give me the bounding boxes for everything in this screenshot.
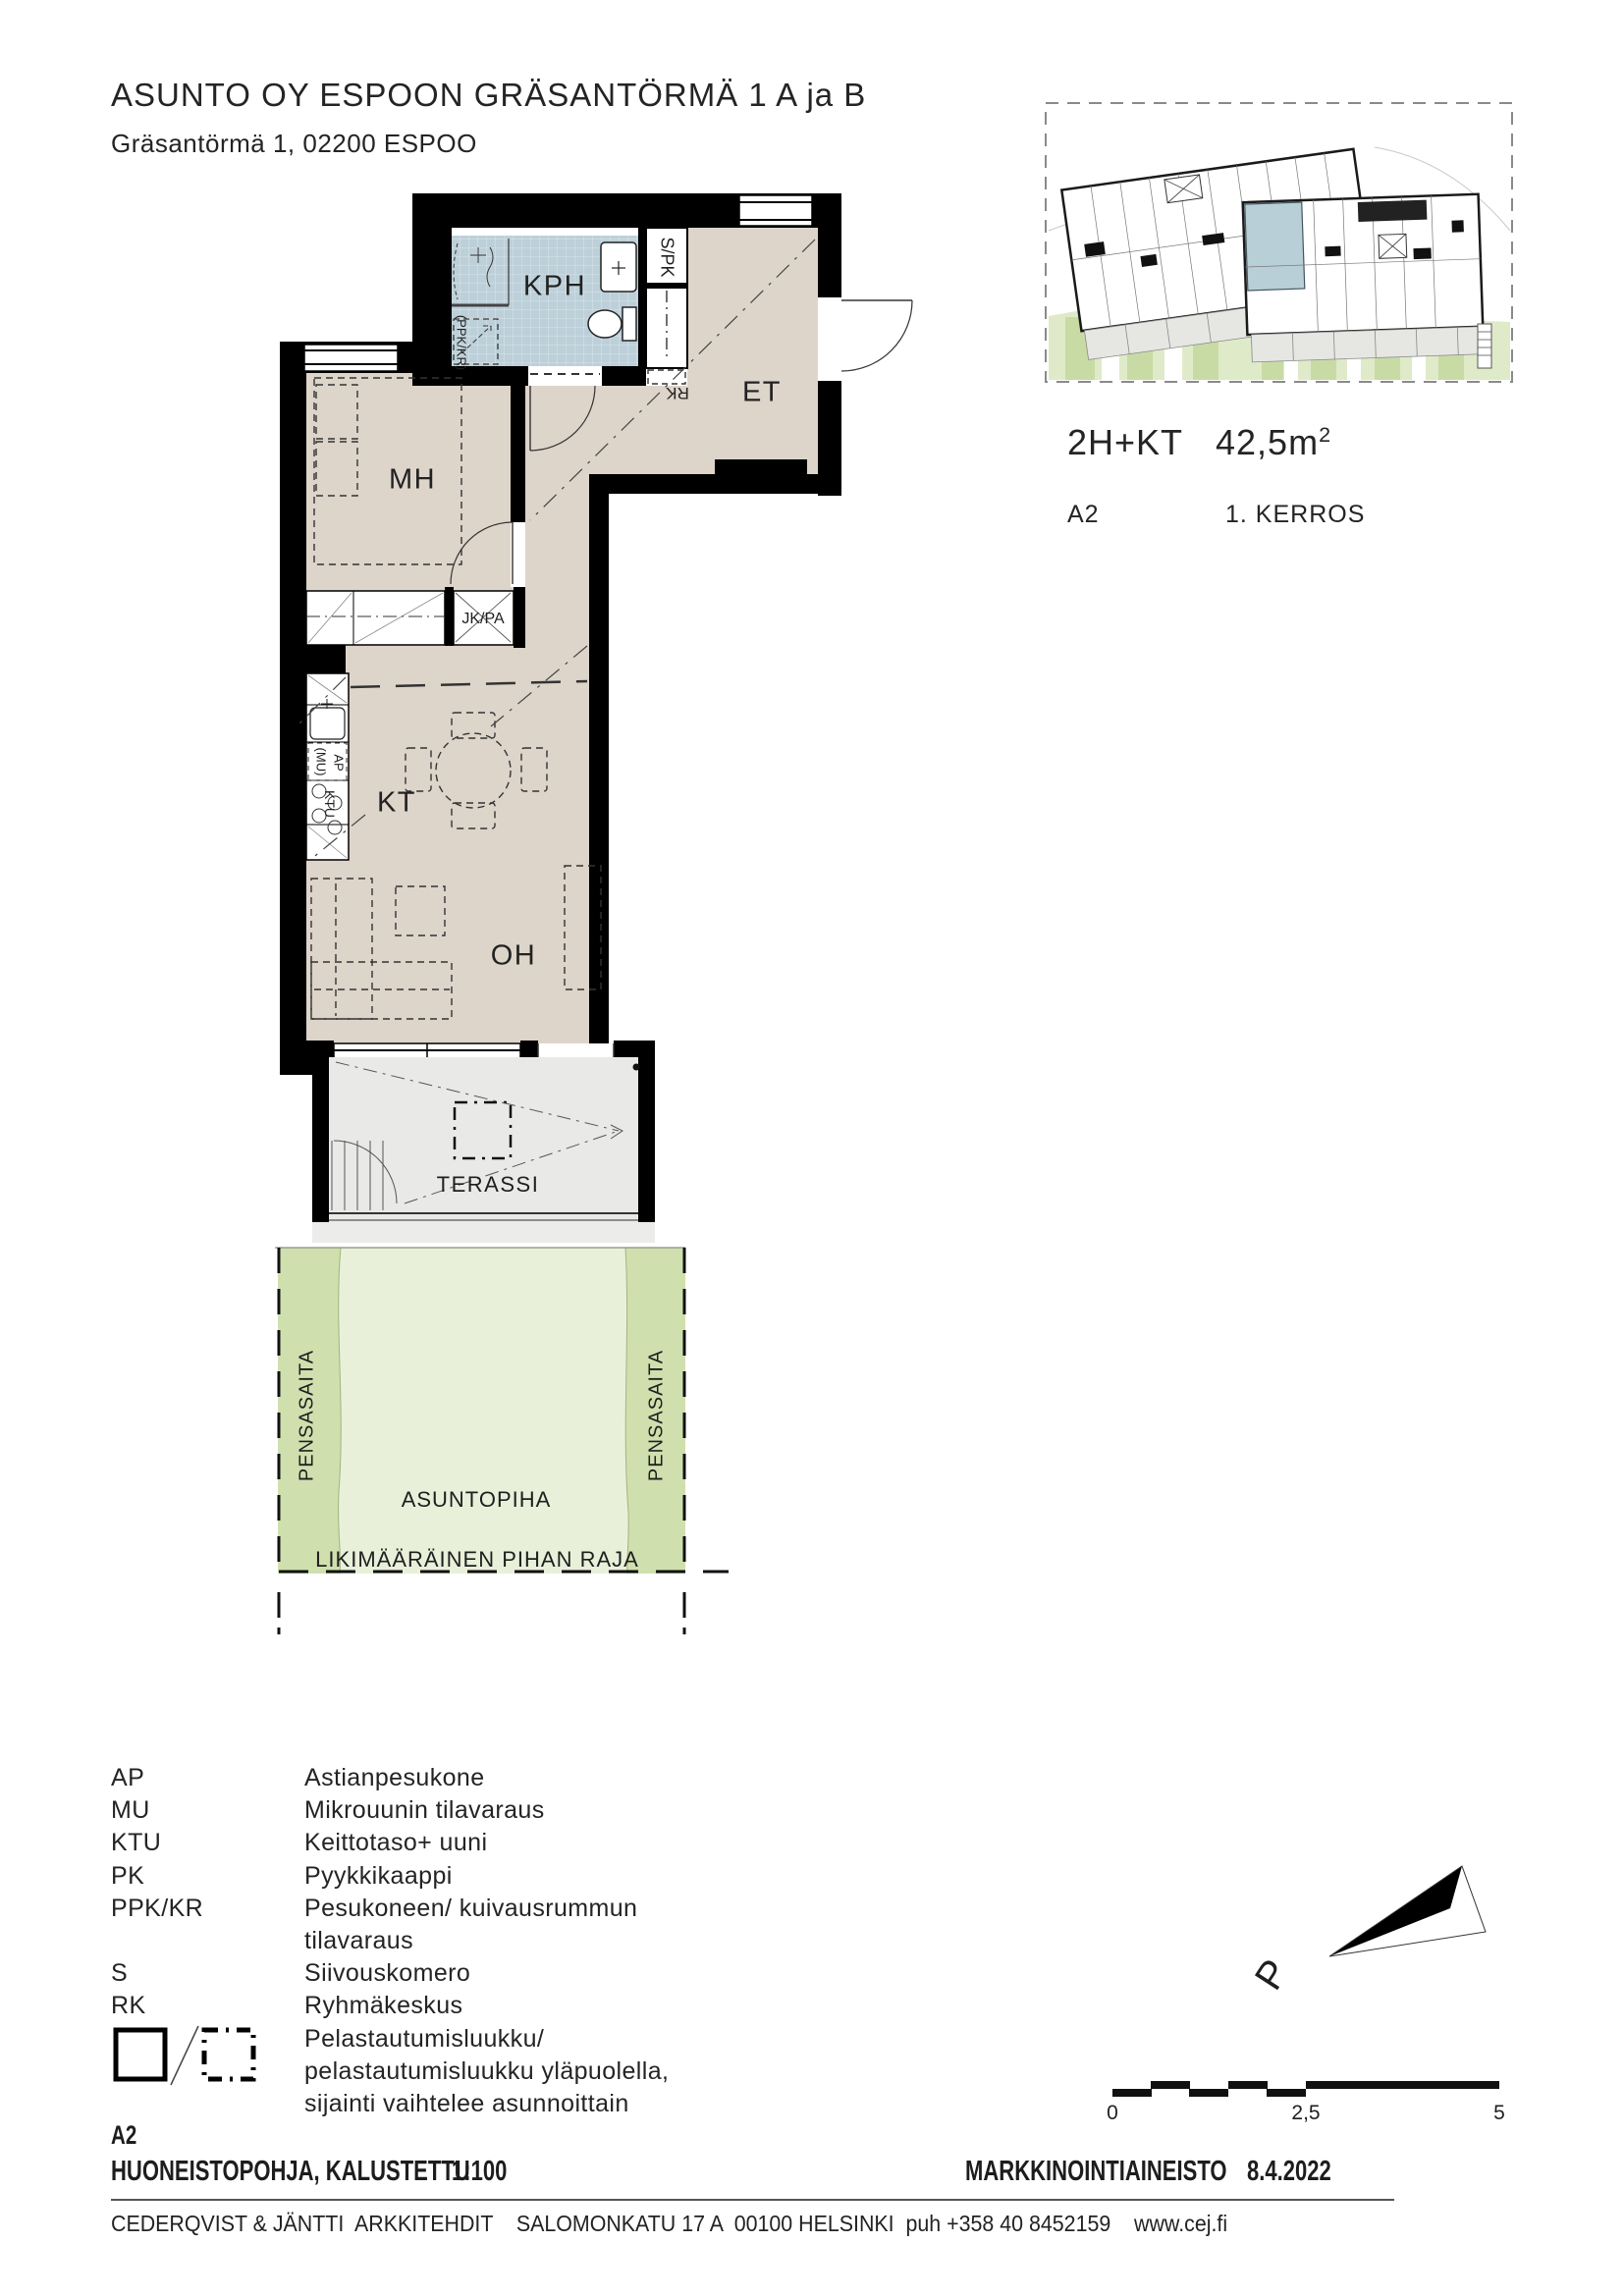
legend-text: Pesukoneen/ kuivausrummun xyxy=(304,1895,637,1922)
site-plan xyxy=(1046,103,1512,382)
legend-row: MUMikrouunin tilavaraus xyxy=(111,1794,669,1827)
room-label-oh: OH xyxy=(491,940,537,973)
titleblock-material: MARKKINOINTIAINEISTO xyxy=(965,2156,1227,2188)
label-courtyard: ASUNTOPIHA xyxy=(402,1487,552,1513)
legend-text: Ryhmäkeskus xyxy=(304,1992,462,2019)
label-ppkkr: (PPK/KR) xyxy=(455,315,469,370)
legend-text: pelastautumisluukku yläpuolella, xyxy=(304,2057,669,2085)
titleblock-drawing-title: HUONEISTOPOHJA, KALUSTETTU xyxy=(111,2156,470,2188)
label-rk: RK xyxy=(666,383,689,402)
legend-text: Mikrouunin tilavaraus xyxy=(304,1796,545,1824)
footer-architect-line: CEDERQVIST & JÄNTTI ARKKITEHDIT SALOMONK… xyxy=(111,2211,1227,2237)
legend-row: Pelastautumisluukku/ xyxy=(111,2023,669,2056)
legend-code: AP xyxy=(111,1762,304,1794)
apartment-unit: A2 xyxy=(1067,501,1100,529)
legend-row: RKRyhmäkeskus xyxy=(111,1990,669,2022)
footer-divider xyxy=(111,2199,1394,2201)
legend-text: Pelastautumisluukku/ xyxy=(304,2025,544,2053)
legend-code: PK xyxy=(111,1860,304,1893)
label-ap: AP xyxy=(332,754,347,771)
area-value: 42,5m xyxy=(1216,422,1319,462)
legend-text: sijainti vaihtelee asunnoittain xyxy=(304,2090,629,2117)
label-yard-boundary: LIKIMÄÄRÄINEN PIHAN RAJA xyxy=(315,1547,639,1573)
legend-code: RK xyxy=(111,1990,304,2022)
legend-row: APAstianpesukone xyxy=(111,1762,669,1794)
apartment-type: 2H+KT xyxy=(1067,422,1183,463)
titleblock-unit: A2 xyxy=(111,2120,136,2151)
project-title: ASUNTO OY ESPOON GRÄSANTÖRMÄ 1 A ja B xyxy=(111,77,866,114)
room-label-kt: KT xyxy=(377,787,416,820)
titleblock-scale: 1:100 xyxy=(452,2156,507,2188)
apartment-area: 42,5m2 xyxy=(1216,422,1331,463)
legend-text: Keittotaso+ uuni xyxy=(304,1829,487,1856)
legend-text: tilavaraus xyxy=(304,1927,413,1954)
legend-row: KTUKeittotaso+ uuni xyxy=(111,1827,669,1859)
room-label-mh: MH xyxy=(389,464,436,497)
apartment-floor: 1. KERROS xyxy=(1225,501,1365,529)
legend-code: S xyxy=(111,1957,304,1990)
legend-code: KTU xyxy=(111,1827,304,1859)
legend-row: SSiivouskomero xyxy=(111,1957,669,1990)
label-hedge-left: PENSASAITA xyxy=(297,1350,319,1481)
room-label-et: ET xyxy=(742,377,782,409)
legend-row: pelastautumisluukku yläpuolella, xyxy=(111,2056,669,2088)
label-hedge-right: PENSASAITA xyxy=(646,1350,669,1481)
scalebar-zero: 0 xyxy=(1107,2102,1118,2125)
legend-row: tilavaraus xyxy=(111,1925,669,1957)
titleblock-date: 8.4.2022 xyxy=(1247,2156,1331,2188)
legend-code: PPK/KR xyxy=(111,1893,304,1925)
terrace xyxy=(312,1057,655,1243)
label-spk: S/PK xyxy=(657,237,677,277)
floorplan-page: ASUNTO OY ESPOON GRÄSANTÖRMÄ 1 A ja B Gr… xyxy=(0,0,1624,2296)
site-building-right xyxy=(1243,194,1485,362)
legend-row: sijainti vaihtelee asunnoittain xyxy=(111,2088,669,2120)
label-ktu: KTU xyxy=(322,790,338,818)
legend-text: Siivouskomero xyxy=(304,1959,470,1987)
legend-row: PPK/KRPesukoneen/ kuivausrummun xyxy=(111,1893,669,1925)
scalebar-max: 5 xyxy=(1493,2102,1505,2125)
label-jkpa: JK/PA xyxy=(461,611,504,628)
legend-text: Astianpesukone xyxy=(304,1764,485,1791)
apartment-plan xyxy=(275,193,912,1634)
legend: APAstianpesukone MUMikrouunin tilavaraus… xyxy=(111,1762,669,2120)
project-address: Gräsantörmä 1, 02200 ESPOO xyxy=(111,129,477,159)
legend-text: Pyykkikaappi xyxy=(304,1862,453,1890)
legend-row: PKPyykkikaappi xyxy=(111,1860,669,1893)
scale-bar xyxy=(1112,2081,1499,2097)
legend-code: MU xyxy=(111,1794,304,1827)
room-label-terassi: TERASSI xyxy=(437,1172,540,1198)
room-label-kph: KPH xyxy=(523,271,586,303)
area-exponent: 2 xyxy=(1319,422,1331,447)
label-mu: (MU) xyxy=(314,748,329,776)
north-arrow-icon xyxy=(1329,1866,1486,1956)
scalebar-mid: 2,5 xyxy=(1291,2102,1320,2125)
